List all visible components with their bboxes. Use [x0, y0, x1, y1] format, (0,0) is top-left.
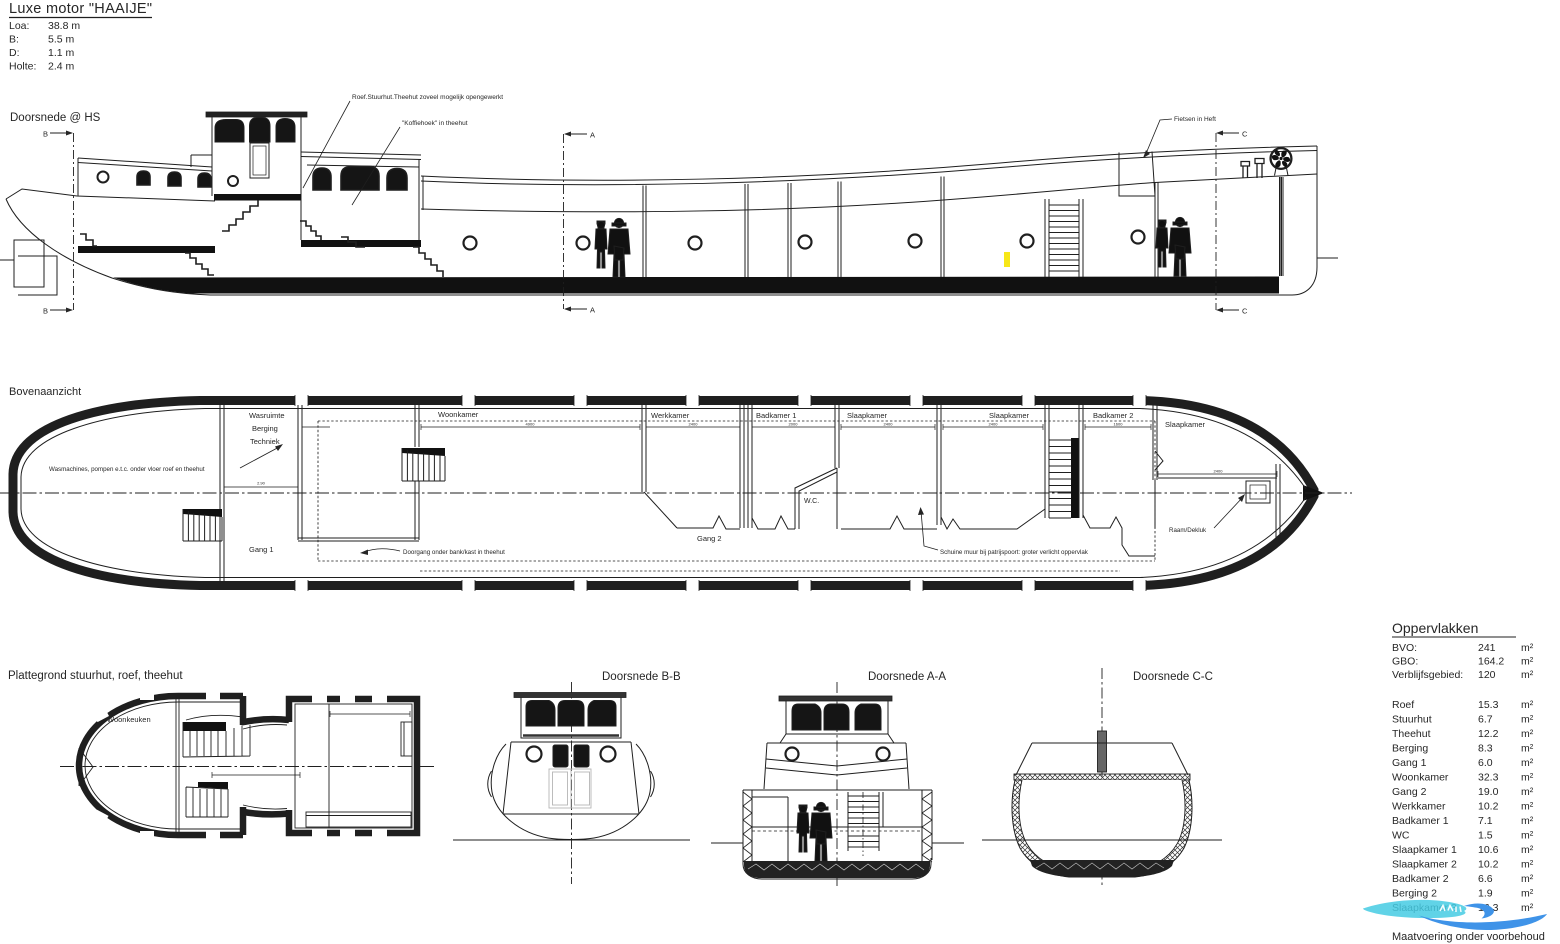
svg-text:Luxe motor "HAAIJE": Luxe motor "HAAIJE"	[9, 1, 152, 17]
svg-text:m²: m²	[1521, 786, 1534, 798]
svg-text:B: B	[43, 307, 48, 316]
svg-text:Maatvoering onder voorbehoud: Maatvoering onder voorbehoud	[1392, 931, 1545, 943]
svg-text:32.3: 32.3	[1478, 772, 1499, 784]
svg-text:1.5: 1.5	[1478, 830, 1493, 842]
svg-text:2400: 2400	[884, 422, 894, 427]
svg-text:Slaapkamer: Slaapkamer	[989, 411, 1030, 420]
svg-text:GBO:: GBO:	[1392, 656, 1418, 668]
svg-text:m²: m²	[1521, 714, 1534, 726]
svg-text:Techniek: Techniek	[250, 437, 280, 446]
svg-text:Badkamer 1: Badkamer 1	[756, 411, 796, 420]
svg-text:15.3: 15.3	[1478, 699, 1499, 711]
svg-text:Doorgang onder bank/kast in th: Doorgang onder bank/kast in theehut	[403, 549, 505, 556]
svg-text:6.7: 6.7	[1478, 714, 1493, 726]
svg-text:Woonkamer: Woonkamer	[438, 410, 479, 419]
svg-text:m²: m²	[1521, 815, 1534, 827]
svg-text:2400: 2400	[1214, 469, 1224, 474]
svg-text:120: 120	[1478, 669, 1496, 681]
svg-text:Holte:: Holte:	[9, 61, 36, 73]
svg-text:Werkkamer: Werkkamer	[651, 411, 690, 420]
svg-text:2.4 m: 2.4 m	[48, 61, 75, 73]
svg-text:B: B	[43, 130, 48, 139]
svg-text:Fietsen in Heft: Fietsen in Heft	[1174, 116, 1216, 123]
svg-text:Woonkeuken: Woonkeuken	[107, 715, 151, 724]
svg-text:m²: m²	[1521, 888, 1534, 900]
svg-text:164.2: 164.2	[1478, 656, 1504, 668]
svg-text:19.0: 19.0	[1478, 786, 1499, 798]
svg-text:6.0: 6.0	[1478, 757, 1493, 769]
svg-text:D:: D:	[9, 47, 20, 59]
svg-text:Slaapkamer 1: Slaapkamer 1	[1392, 844, 1457, 856]
svg-text:Gang 2: Gang 2	[697, 534, 722, 543]
svg-text:WC: WC	[1392, 830, 1410, 842]
svg-text:Doorsnede @ HS: Doorsnede @ HS	[10, 112, 101, 124]
svg-text:2400: 2400	[989, 422, 999, 427]
svg-text:38.8 m: 38.8 m	[48, 20, 80, 32]
svg-text:Badkamer 1: Badkamer 1	[1392, 815, 1449, 827]
svg-text:Berging 2: Berging 2	[1392, 888, 1437, 900]
svg-text:m²: m²	[1521, 902, 1534, 914]
svg-text:m²: m²	[1521, 699, 1534, 711]
svg-text:2.90: 2.90	[257, 481, 266, 486]
svg-text:Plattegrond stuurhut, roef, th: Plattegrond stuurhut, roef, theehut	[8, 670, 183, 682]
svg-text:A: A	[590, 131, 595, 140]
svg-text:8.3: 8.3	[1478, 743, 1493, 755]
svg-text:Roef: Roef	[1392, 699, 1414, 711]
svg-text:m²: m²	[1521, 859, 1534, 871]
svg-text:"Koffiehoek" in theehut: "Koffiehoek" in theehut	[402, 120, 468, 127]
svg-text:Slaapkamer: Slaapkamer	[1165, 420, 1206, 429]
svg-text:Badkamer 2: Badkamer 2	[1093, 411, 1133, 420]
svg-text:m²: m²	[1521, 772, 1534, 784]
svg-text:12.2: 12.2	[1478, 728, 1499, 740]
svg-text:C: C	[1242, 307, 1248, 316]
svg-text:Wasruimte: Wasruimte	[249, 411, 285, 420]
svg-text:6.6: 6.6	[1478, 873, 1493, 885]
svg-text:Loa:: Loa:	[9, 20, 29, 32]
svg-text:1.1 m: 1.1 m	[48, 47, 75, 59]
svg-text:Berging: Berging	[1392, 743, 1428, 755]
svg-text:Doorsnede B-B: Doorsnede B-B	[602, 671, 681, 683]
svg-text:Doorsnede C-C: Doorsnede C-C	[1133, 671, 1213, 683]
svg-text:2000: 2000	[789, 422, 799, 427]
svg-text:Verblijfsgebied:: Verblijfsgebied:	[1392, 669, 1463, 681]
svg-text:m²: m²	[1521, 656, 1534, 668]
svg-text:7.1: 7.1	[1478, 815, 1493, 827]
svg-text:m²: m²	[1521, 728, 1534, 740]
svg-text:m²: m²	[1521, 669, 1534, 681]
svg-text:BVO:: BVO:	[1392, 642, 1417, 654]
svg-text:C: C	[1242, 130, 1248, 139]
svg-text:Wasmachines, pompen e.t.c. ond: Wasmachines, pompen e.t.c. onder vloer r…	[49, 466, 205, 473]
svg-text:m²: m²	[1521, 642, 1534, 654]
svg-text:Gang 2: Gang 2	[1392, 786, 1427, 798]
svg-text:Badkamer 2: Badkamer 2	[1392, 873, 1449, 885]
svg-text:5.5 m: 5.5 m	[48, 34, 75, 46]
svg-text:m²: m²	[1521, 830, 1534, 842]
svg-text:Roef.Stuurhut.Theehut zoveel m: Roef.Stuurhut.Theehut zoveel mogelijk op…	[352, 94, 503, 101]
svg-text:1.9: 1.9	[1478, 888, 1493, 900]
svg-text:Theehut: Theehut	[1392, 728, 1431, 740]
svg-text:m²: m²	[1521, 743, 1534, 755]
svg-text:m²: m²	[1521, 873, 1534, 885]
svg-text:Schuine muur bij patrijspoort:: Schuine muur bij patrijspoort: groter ve…	[940, 549, 1089, 556]
svg-text:Werkkamer: Werkkamer	[1392, 801, 1446, 813]
svg-text:241: 241	[1478, 642, 1496, 654]
svg-text:2400: 2400	[689, 422, 699, 427]
svg-text:W.C.: W.C.	[804, 498, 819, 505]
svg-text:10.6: 10.6	[1478, 844, 1499, 856]
svg-text:m²: m²	[1521, 844, 1534, 856]
svg-text:A: A	[590, 306, 595, 315]
svg-text:10.2: 10.2	[1478, 801, 1499, 813]
svg-text:B:: B:	[9, 34, 19, 46]
svg-text:Gang 1: Gang 1	[1392, 757, 1427, 769]
svg-text:Slaapkamer 2: Slaapkamer 2	[1392, 859, 1457, 871]
svg-text:Oppervlakken: Oppervlakken	[1392, 620, 1478, 636]
svg-text:10.2: 10.2	[1478, 859, 1499, 871]
svg-text:4900: 4900	[526, 422, 536, 427]
svg-text:Stuurhut: Stuurhut	[1392, 714, 1432, 726]
svg-text:Gang 1: Gang 1	[249, 545, 274, 554]
svg-text:Doorsnede A-A: Doorsnede A-A	[868, 671, 946, 683]
svg-text:m²: m²	[1521, 801, 1534, 813]
svg-text:1600: 1600	[1114, 422, 1124, 427]
svg-text:m²: m²	[1521, 757, 1534, 769]
svg-text:Raam/Dekluk: Raam/Dekluk	[1169, 527, 1207, 534]
svg-text:Slaapkamer: Slaapkamer	[847, 411, 888, 420]
svg-text:Bovenaanzicht: Bovenaanzicht	[9, 386, 81, 398]
svg-text:Woonkamer: Woonkamer	[1392, 772, 1449, 784]
svg-text:Berging: Berging	[252, 424, 278, 433]
